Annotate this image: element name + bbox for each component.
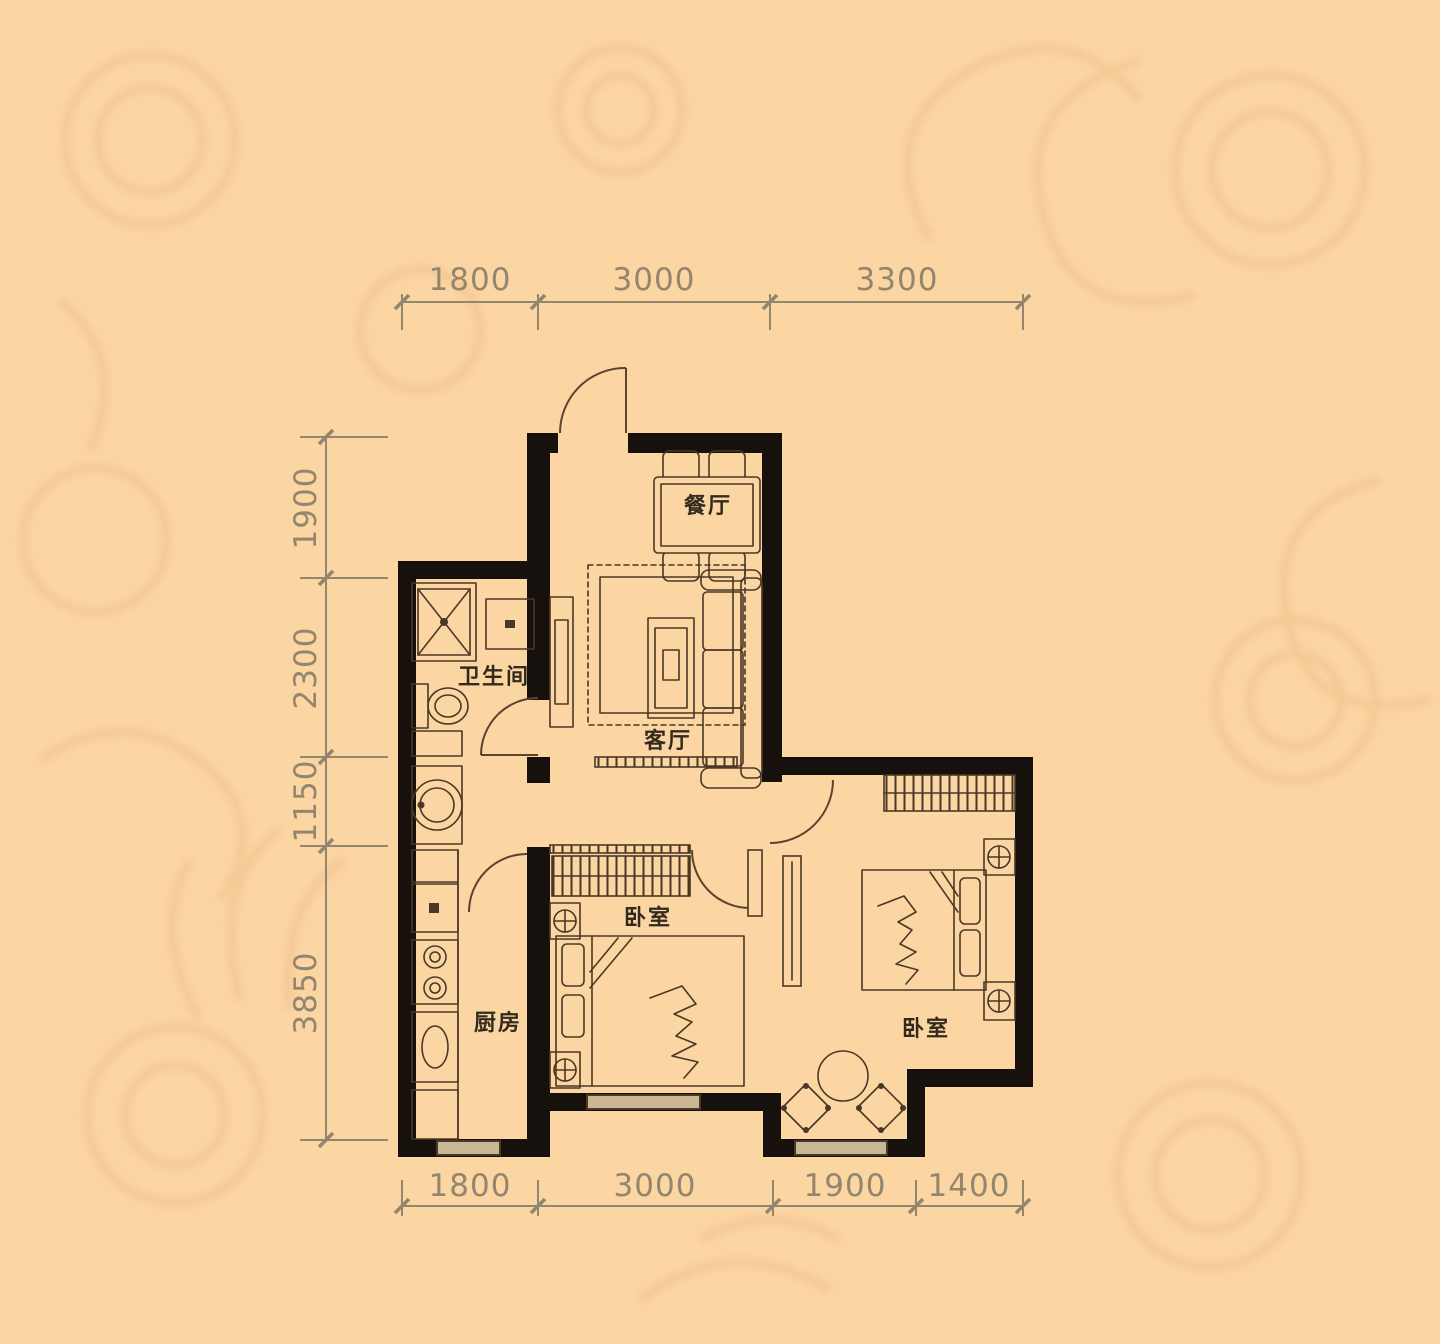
dim-top-3: 3300 — [856, 262, 939, 298]
balcony-window — [795, 1141, 887, 1155]
wall-mid-vertical-stub — [527, 757, 550, 783]
dim-top-2: 3000 — [613, 262, 696, 298]
wall-mid-vertical-upper — [527, 433, 550, 700]
dim-left-1: 1900 — [288, 467, 324, 550]
wall-mid-vertical-lower — [527, 847, 550, 1157]
room-label-bathroom: 卫生间 — [458, 665, 530, 690]
dim-bottom-3: 1900 — [804, 1168, 887, 1204]
middle-bedroom-door-leaf — [748, 850, 762, 916]
room-label-kitchen: 厨房 — [474, 1010, 522, 1036]
wall-right-section-top — [762, 757, 1033, 775]
room-label-bedroom-middle: 卧室 — [624, 905, 672, 931]
dim-bottom-4: 1400 — [928, 1168, 1011, 1204]
dim-bottom-1: 1800 — [429, 1168, 512, 1204]
dim-top-1: 1800 — [429, 262, 512, 298]
room-label-living: 客厅 — [644, 728, 692, 754]
wall-far-right — [1015, 757, 1033, 1087]
wall-top-right — [628, 433, 782, 453]
middle-bedroom-window — [587, 1095, 700, 1109]
room-label-bedroom-right: 卧室 — [902, 1016, 950, 1042]
wall-right-bedroom-bottom — [907, 1069, 1033, 1087]
wall-living-right — [762, 433, 782, 782]
dim-left-3: 1150 — [288, 760, 324, 843]
room-label-dining: 餐厅 — [684, 494, 732, 519]
dim-left-2: 2300 — [288, 627, 324, 710]
dim-left-4: 3850 — [288, 952, 324, 1035]
kitchen-window — [437, 1141, 500, 1155]
dim-bottom-2: 3000 — [614, 1168, 697, 1204]
floor-plan-canvas: 餐厅 客厅 — [0, 0, 1440, 1344]
middle-bedroom-top-partition — [550, 845, 690, 853]
floor-plan-page: 餐厅 客厅 — [0, 0, 1440, 1344]
wall-left — [398, 561, 416, 1157]
